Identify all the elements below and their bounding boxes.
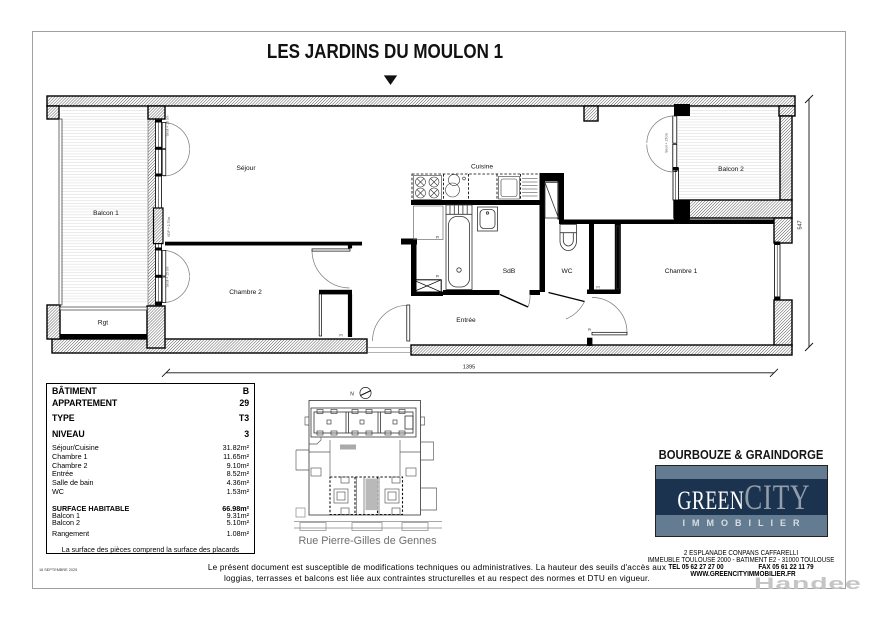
svg-text:Pl: Pl	[339, 334, 342, 338]
svg-text:Cuisine: Cuisine	[471, 164, 493, 171]
svg-text:Pl: Pl	[436, 236, 439, 240]
svg-text:Seuil + 15 cm: Seuil + 15 cm	[166, 116, 170, 137]
svg-text:Pl: Pl	[596, 286, 599, 290]
svg-text:Entrée: Entrée	[456, 317, 476, 324]
svg-text:Chambre 2: Chambre 2	[229, 289, 262, 296]
svg-text:Pl: Pl	[588, 328, 591, 332]
svg-text:Seuil + 15 cm: Seuil + 15 cm	[166, 267, 170, 288]
svg-text:VDP + 2.70m: VDP + 2.70m	[167, 217, 171, 237]
svg-text:Balcon 1: Balcon 1	[93, 210, 119, 217]
svg-text:SdB: SdB	[503, 268, 516, 275]
svg-text:547: 547	[798, 220, 804, 229]
svg-text:Séjour: Séjour	[236, 165, 256, 172]
svg-text:Pl: Pl	[436, 275, 439, 279]
svg-text:Balcon 2: Balcon 2	[718, 166, 744, 173]
svg-text:Chambre 1: Chambre 1	[665, 268, 698, 275]
svg-text:Rgt: Rgt	[98, 320, 108, 327]
svg-text:1395: 1395	[463, 365, 475, 371]
svg-text:N: N	[350, 392, 354, 398]
svg-text:WC: WC	[562, 268, 573, 275]
svg-text:Seuil + 15cm: Seuil + 15cm	[665, 133, 669, 153]
